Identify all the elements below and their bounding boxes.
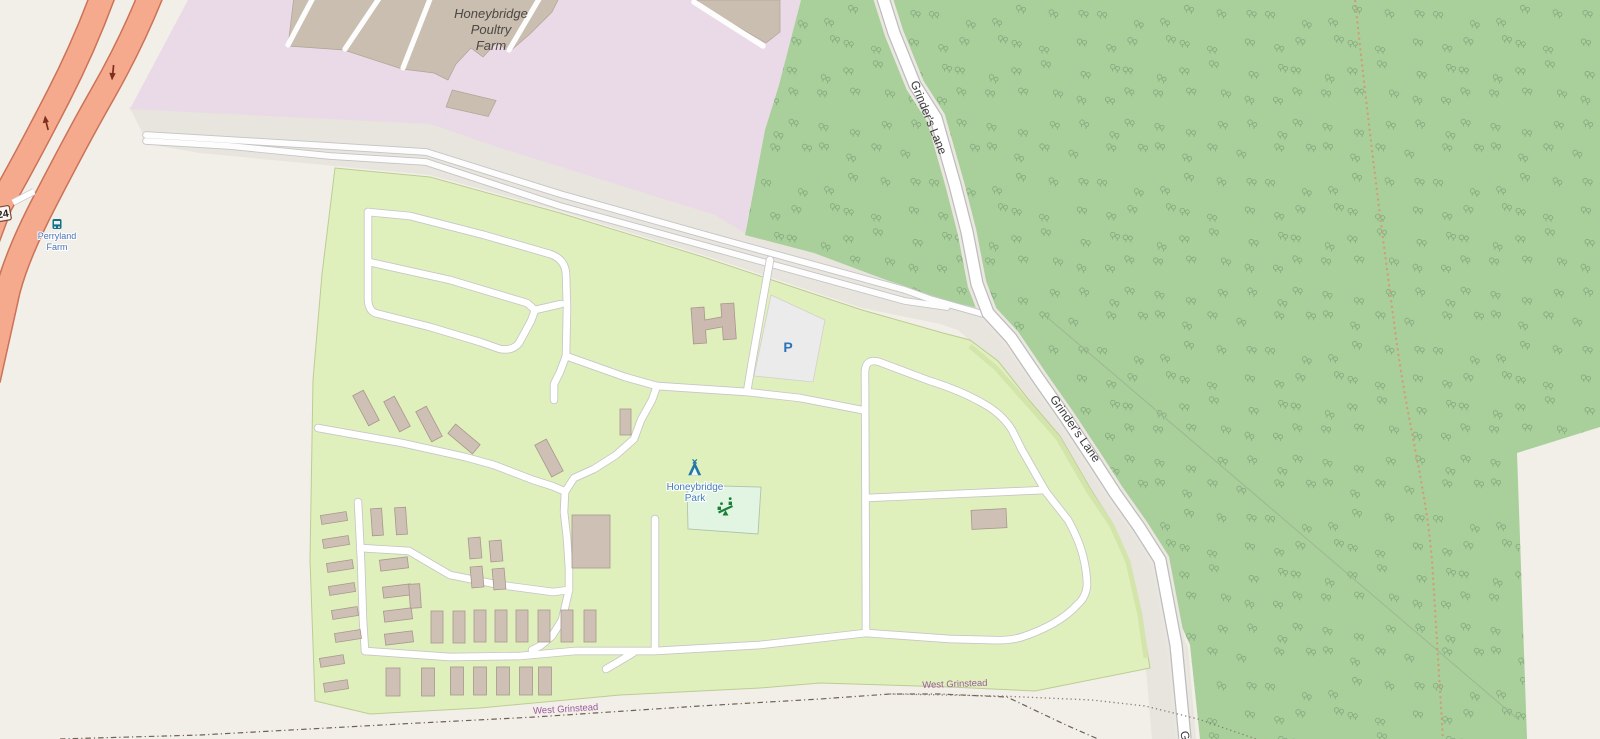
- svg-text:Honeybridge: Honeybridge: [454, 6, 528, 21]
- svg-text:Poultry: Poultry: [471, 22, 513, 37]
- svg-text:Farm: Farm: [47, 242, 68, 252]
- svg-text:West Grinstead: West Grinstead: [922, 678, 988, 691]
- svg-text:Park: Park: [685, 493, 707, 504]
- svg-text:Farm: Farm: [476, 38, 507, 53]
- svg-text:Perryland: Perryland: [38, 231, 77, 241]
- svg-text:P: P: [783, 339, 792, 355]
- svg-text:Honeybridge: Honeybridge: [667, 482, 724, 493]
